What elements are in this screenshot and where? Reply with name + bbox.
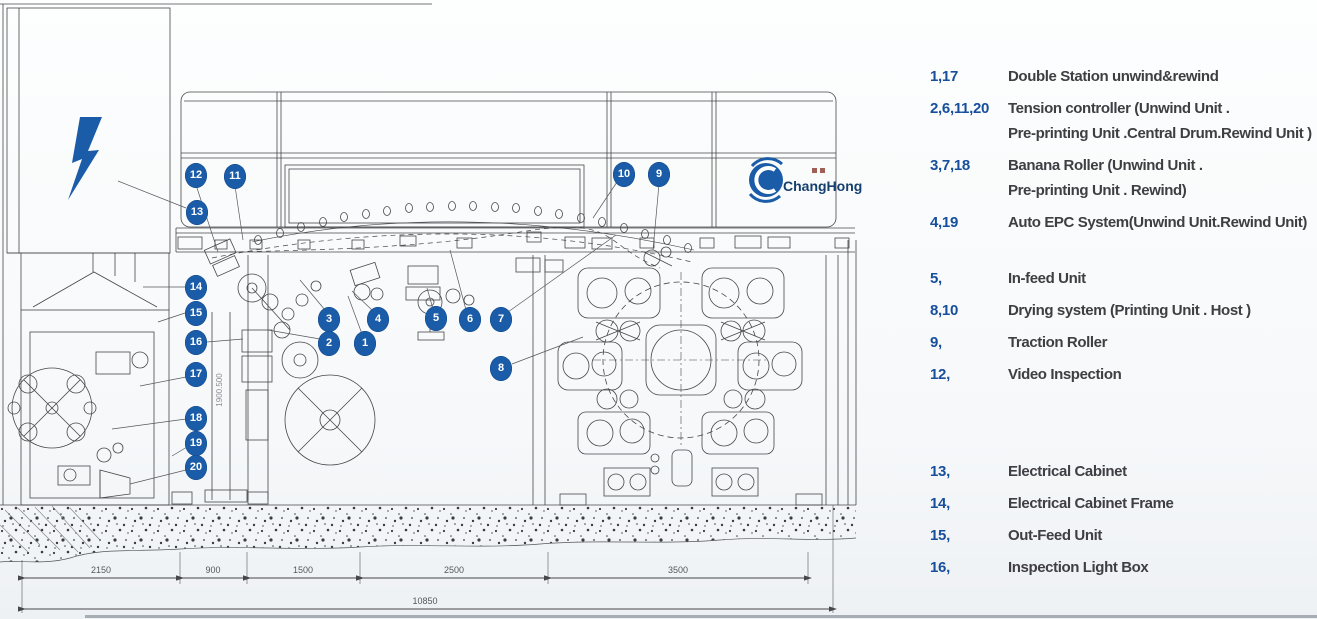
legend-row: 13, Electrical Cabinet bbox=[930, 459, 1310, 484]
legend-description: Tension controller (Unwind Unit . Pre-pr… bbox=[1008, 96, 1312, 146]
legend-numbers: 16, bbox=[930, 555, 1008, 580]
legend-numbers: 15, bbox=[930, 523, 1008, 548]
callout-7: 7 bbox=[490, 307, 512, 332]
legend-description: Electrical Cabinet bbox=[1008, 459, 1310, 484]
legend-numbers: 2,6,11,20 bbox=[930, 96, 1008, 146]
legend-row: 15, Out-Feed Unit bbox=[930, 523, 1310, 548]
callout-19: 19 bbox=[185, 431, 207, 456]
callout-16: 16 bbox=[185, 330, 207, 355]
legend-row: 2,6,11,20 Tension controller (Unwind Uni… bbox=[930, 96, 1310, 146]
callout-8: 8 bbox=[490, 356, 512, 381]
legend-row: 1,17 Double Station unwind&rewind bbox=[930, 64, 1310, 89]
legend-row: 12, Video Inspection bbox=[930, 362, 1310, 387]
legend-row: 8,10 Drying system (Printing Unit . Host… bbox=[930, 298, 1310, 323]
legend-description: Banana Roller (Unwind Unit . Pre-printin… bbox=[1008, 153, 1310, 203]
callout-3: 3 bbox=[318, 307, 340, 332]
callout-20: 20 bbox=[185, 455, 207, 480]
legend-group-main: 1,17 Double Station unwind&rewind 2,6,11… bbox=[930, 64, 1310, 242]
legend-numbers: 1,17 bbox=[930, 64, 1008, 89]
legend-description: Electrical Cabinet Frame bbox=[1008, 491, 1310, 516]
callout-18: 18 bbox=[185, 406, 207, 431]
legend-row: 3,7,18 Banana Roller (Unwind Unit . Pre-… bbox=[930, 153, 1310, 203]
legend-row: 9, Traction Roller bbox=[930, 330, 1310, 355]
callout-2: 2 bbox=[318, 331, 340, 356]
callout-12: 12 bbox=[185, 163, 207, 188]
callout-14: 14 bbox=[185, 275, 207, 300]
legend-description: Auto EPC System(Unwind Unit.Rewind Unit) bbox=[1008, 210, 1310, 235]
legend-description: Out-Feed Unit bbox=[1008, 523, 1310, 548]
callout-13: 13 bbox=[186, 200, 208, 225]
legend-row: 14, Electrical Cabinet Frame bbox=[930, 491, 1310, 516]
callout-5: 5 bbox=[425, 306, 447, 331]
legend-group-cabinet: 13, Electrical Cabinet 14, Electrical Ca… bbox=[930, 459, 1310, 587]
legend-description: Drying system (Printing Unit . Host ) bbox=[1008, 298, 1310, 323]
legend-numbers: 9, bbox=[930, 330, 1008, 355]
legend-numbers: 14, bbox=[930, 491, 1008, 516]
callout-15: 15 bbox=[185, 301, 207, 326]
flexo-press-diagram-page: ChangHong 1900.500 bbox=[0, 0, 1317, 619]
legend-numbers: 8,10 bbox=[930, 298, 1008, 323]
legend-numbers: 4,19 bbox=[930, 210, 1008, 235]
legend-row: 16, Inspection Light Box bbox=[930, 555, 1310, 580]
callout-9: 9 bbox=[648, 162, 670, 187]
legend-numbers: 12, bbox=[930, 362, 1008, 387]
callout-10: 10 bbox=[613, 162, 635, 187]
callout-17: 17 bbox=[185, 362, 207, 387]
callout-1: 1 bbox=[354, 331, 376, 356]
legend-row: 5, In-feed Unit bbox=[930, 266, 1310, 291]
legend-description: Inspection Light Box bbox=[1008, 555, 1310, 580]
legend-description: In-feed Unit bbox=[1008, 266, 1310, 291]
legend-description: Double Station unwind&rewind bbox=[1008, 64, 1310, 89]
legend-numbers: 5, bbox=[930, 266, 1008, 291]
callout-4: 4 bbox=[367, 307, 389, 332]
legend-description: Traction Roller bbox=[1008, 330, 1310, 355]
legend-group-units: 5, In-feed Unit 8,10 Drying system (Prin… bbox=[930, 266, 1310, 394]
legend-numbers: 13, bbox=[930, 459, 1008, 484]
legend-row: 4,19 Auto EPC System(Unwind Unit.Rewind … bbox=[930, 210, 1310, 235]
legend-numbers: 3,7,18 bbox=[930, 153, 1008, 203]
legend-description: Video Inspection bbox=[1008, 362, 1310, 387]
callout-11: 11 bbox=[224, 164, 246, 189]
callout-6: 6 bbox=[459, 307, 481, 332]
